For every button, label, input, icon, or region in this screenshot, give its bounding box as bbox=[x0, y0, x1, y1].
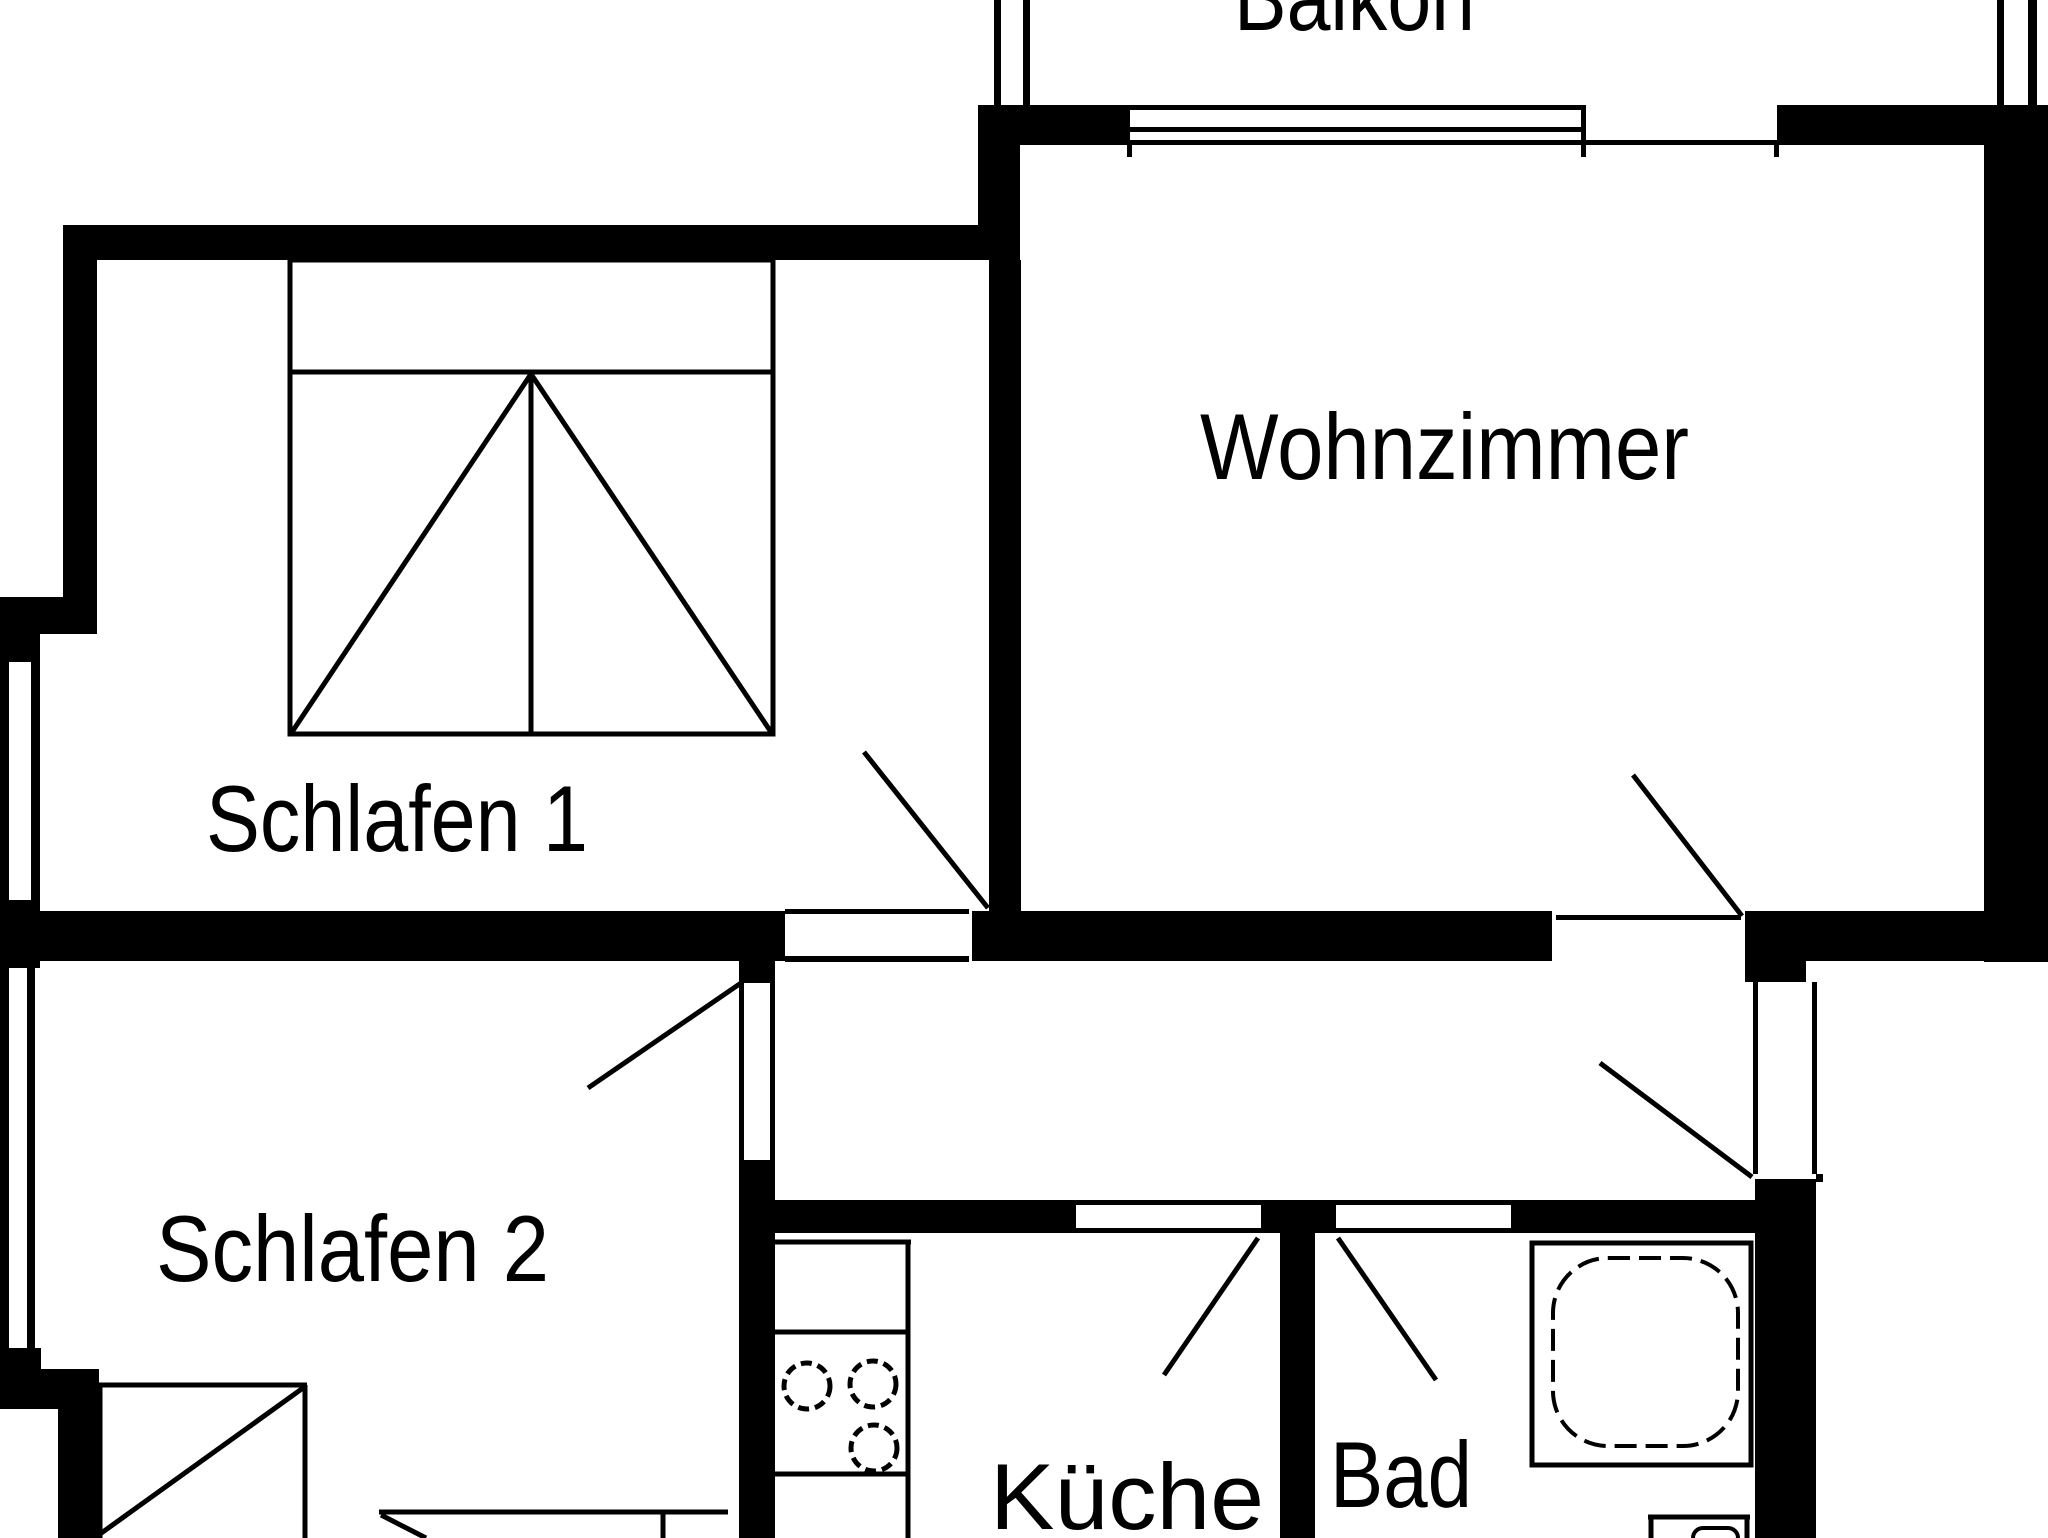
svg-text:Bad: Bad bbox=[1330, 1422, 1472, 1527]
svg-text:Schlafen 1: Schlafen 1 bbox=[206, 766, 588, 871]
svg-text:Wohnzimmer: Wohnzimmer bbox=[1200, 394, 1689, 499]
svg-text:Schlafen 2: Schlafen 2 bbox=[156, 1196, 549, 1301]
svg-text:Küche: Küche bbox=[990, 1444, 1264, 1538]
svg-text:Balkon: Balkon bbox=[1234, 0, 1475, 50]
